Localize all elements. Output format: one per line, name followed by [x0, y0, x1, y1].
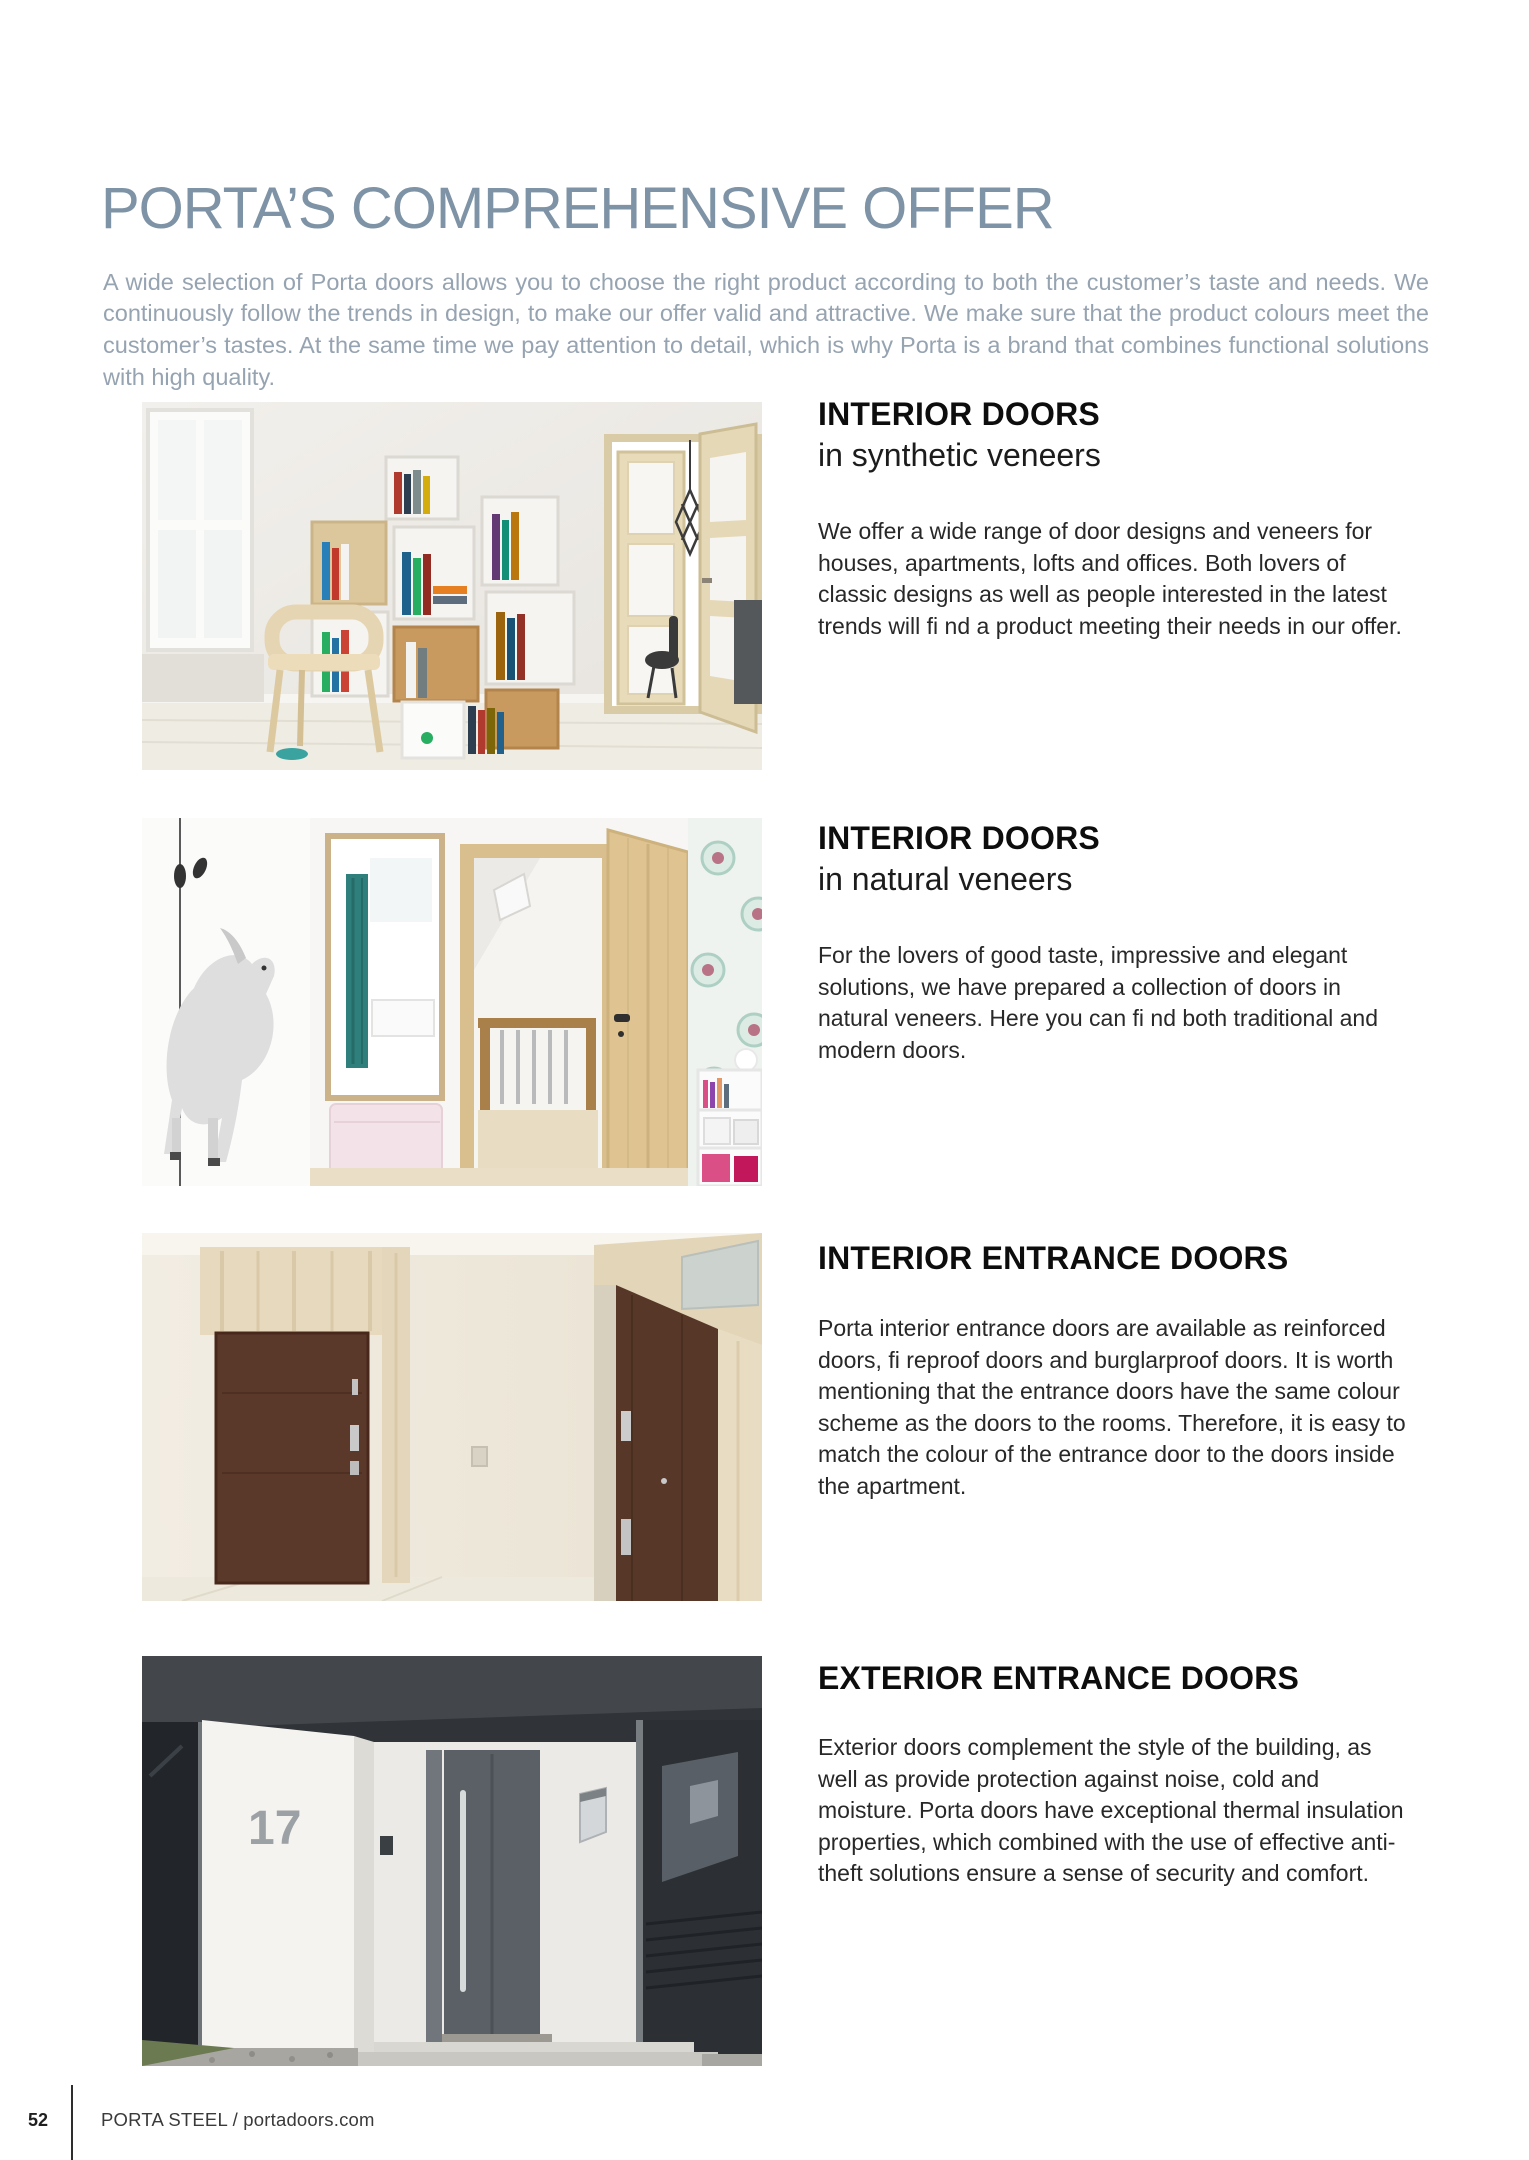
house-number: 17 [248, 1802, 301, 1855]
catalog-page: PORTA’S COMPREHENSIVE OFFER A wide selec… [0, 0, 1529, 2160]
section-body: For the lovers of good taste, impressive… [818, 940, 1414, 1066]
right-entrance-door [594, 1233, 762, 1601]
section-subtitle: in synthetic veneers [818, 434, 1422, 476]
door-lock-plate [350, 1425, 359, 1451]
photo-interior-synthetic-veneers [142, 402, 762, 770]
illustration-child-room [142, 818, 762, 1186]
entrance-door [374, 1742, 636, 2066]
section-title: EXTERIOR ENTRANCE DOORS [818, 1658, 1422, 1698]
illustration-study-room [142, 402, 762, 770]
door-handle [702, 578, 712, 583]
horse-mural [142, 818, 310, 1186]
section-interior-natural: INTERIOR DOORS in natural veneers For th… [818, 818, 1422, 1066]
section-subtitle: in natural veneers [818, 858, 1422, 900]
section-interior-entrance: INTERIOR ENTRANCE DOORS Porta interior e… [818, 1238, 1422, 1502]
photo-exterior-entrance-doors: 17 [142, 1656, 762, 2066]
wood-floor [310, 1168, 688, 1186]
door-hinge [621, 1411, 631, 1441]
white-shelf [698, 1049, 762, 1186]
photo-interior-entrance-doors [142, 1233, 762, 1601]
section-title: INTERIOR ENTRANCE DOORS [818, 1238, 1422, 1278]
open-oak-door [460, 830, 688, 1182]
intercom [380, 1836, 393, 1855]
section-interior-synthetic: INTERIOR DOORS in synthetic veneers We o… [818, 394, 1422, 642]
pink-bin [702, 1154, 730, 1182]
gray-chair-back [734, 600, 762, 704]
footer-divider [71, 2085, 73, 2160]
plush-toy [735, 1049, 757, 1071]
vertical-steel-handle [460, 1790, 466, 1992]
light-switch [472, 1447, 487, 1466]
footer-text: PORTA STEEL / portadoors.com [101, 2109, 375, 2131]
section-title: INTERIOR DOORS [818, 818, 1422, 858]
page-title: PORTA’S COMPREHENSIVE OFFER [101, 177, 1441, 241]
house-number-pillar: 17 [202, 1720, 374, 2066]
door-handle [614, 1014, 630, 1022]
teal-lamp [276, 748, 308, 760]
sidelight [426, 1750, 442, 2042]
section-exterior-entrance: EXTERIOR ENTRANCE DOORS Exterior doors c… [818, 1658, 1422, 1890]
section-body: We offer a wide range of door designs an… [818, 516, 1414, 642]
intro-paragraph: A wide selection of Porta doors allows y… [103, 267, 1429, 394]
photo-interior-natural-veneers [142, 818, 762, 1186]
pink-pouf [330, 1104, 442, 1178]
right-window [636, 1720, 762, 2066]
page-number: 52 [14, 2110, 48, 2131]
section-body: Porta interior entrance doors are availa… [818, 1313, 1414, 1502]
illustration-entrance-hallway [142, 1233, 762, 1601]
window [142, 410, 264, 702]
section-title: INTERIOR DOORS [818, 394, 1422, 434]
section-body: Exterior doors complement the style of t… [818, 1732, 1414, 1890]
illustration-house-entrance: 17 [142, 1656, 762, 2066]
mirror [328, 836, 442, 1098]
